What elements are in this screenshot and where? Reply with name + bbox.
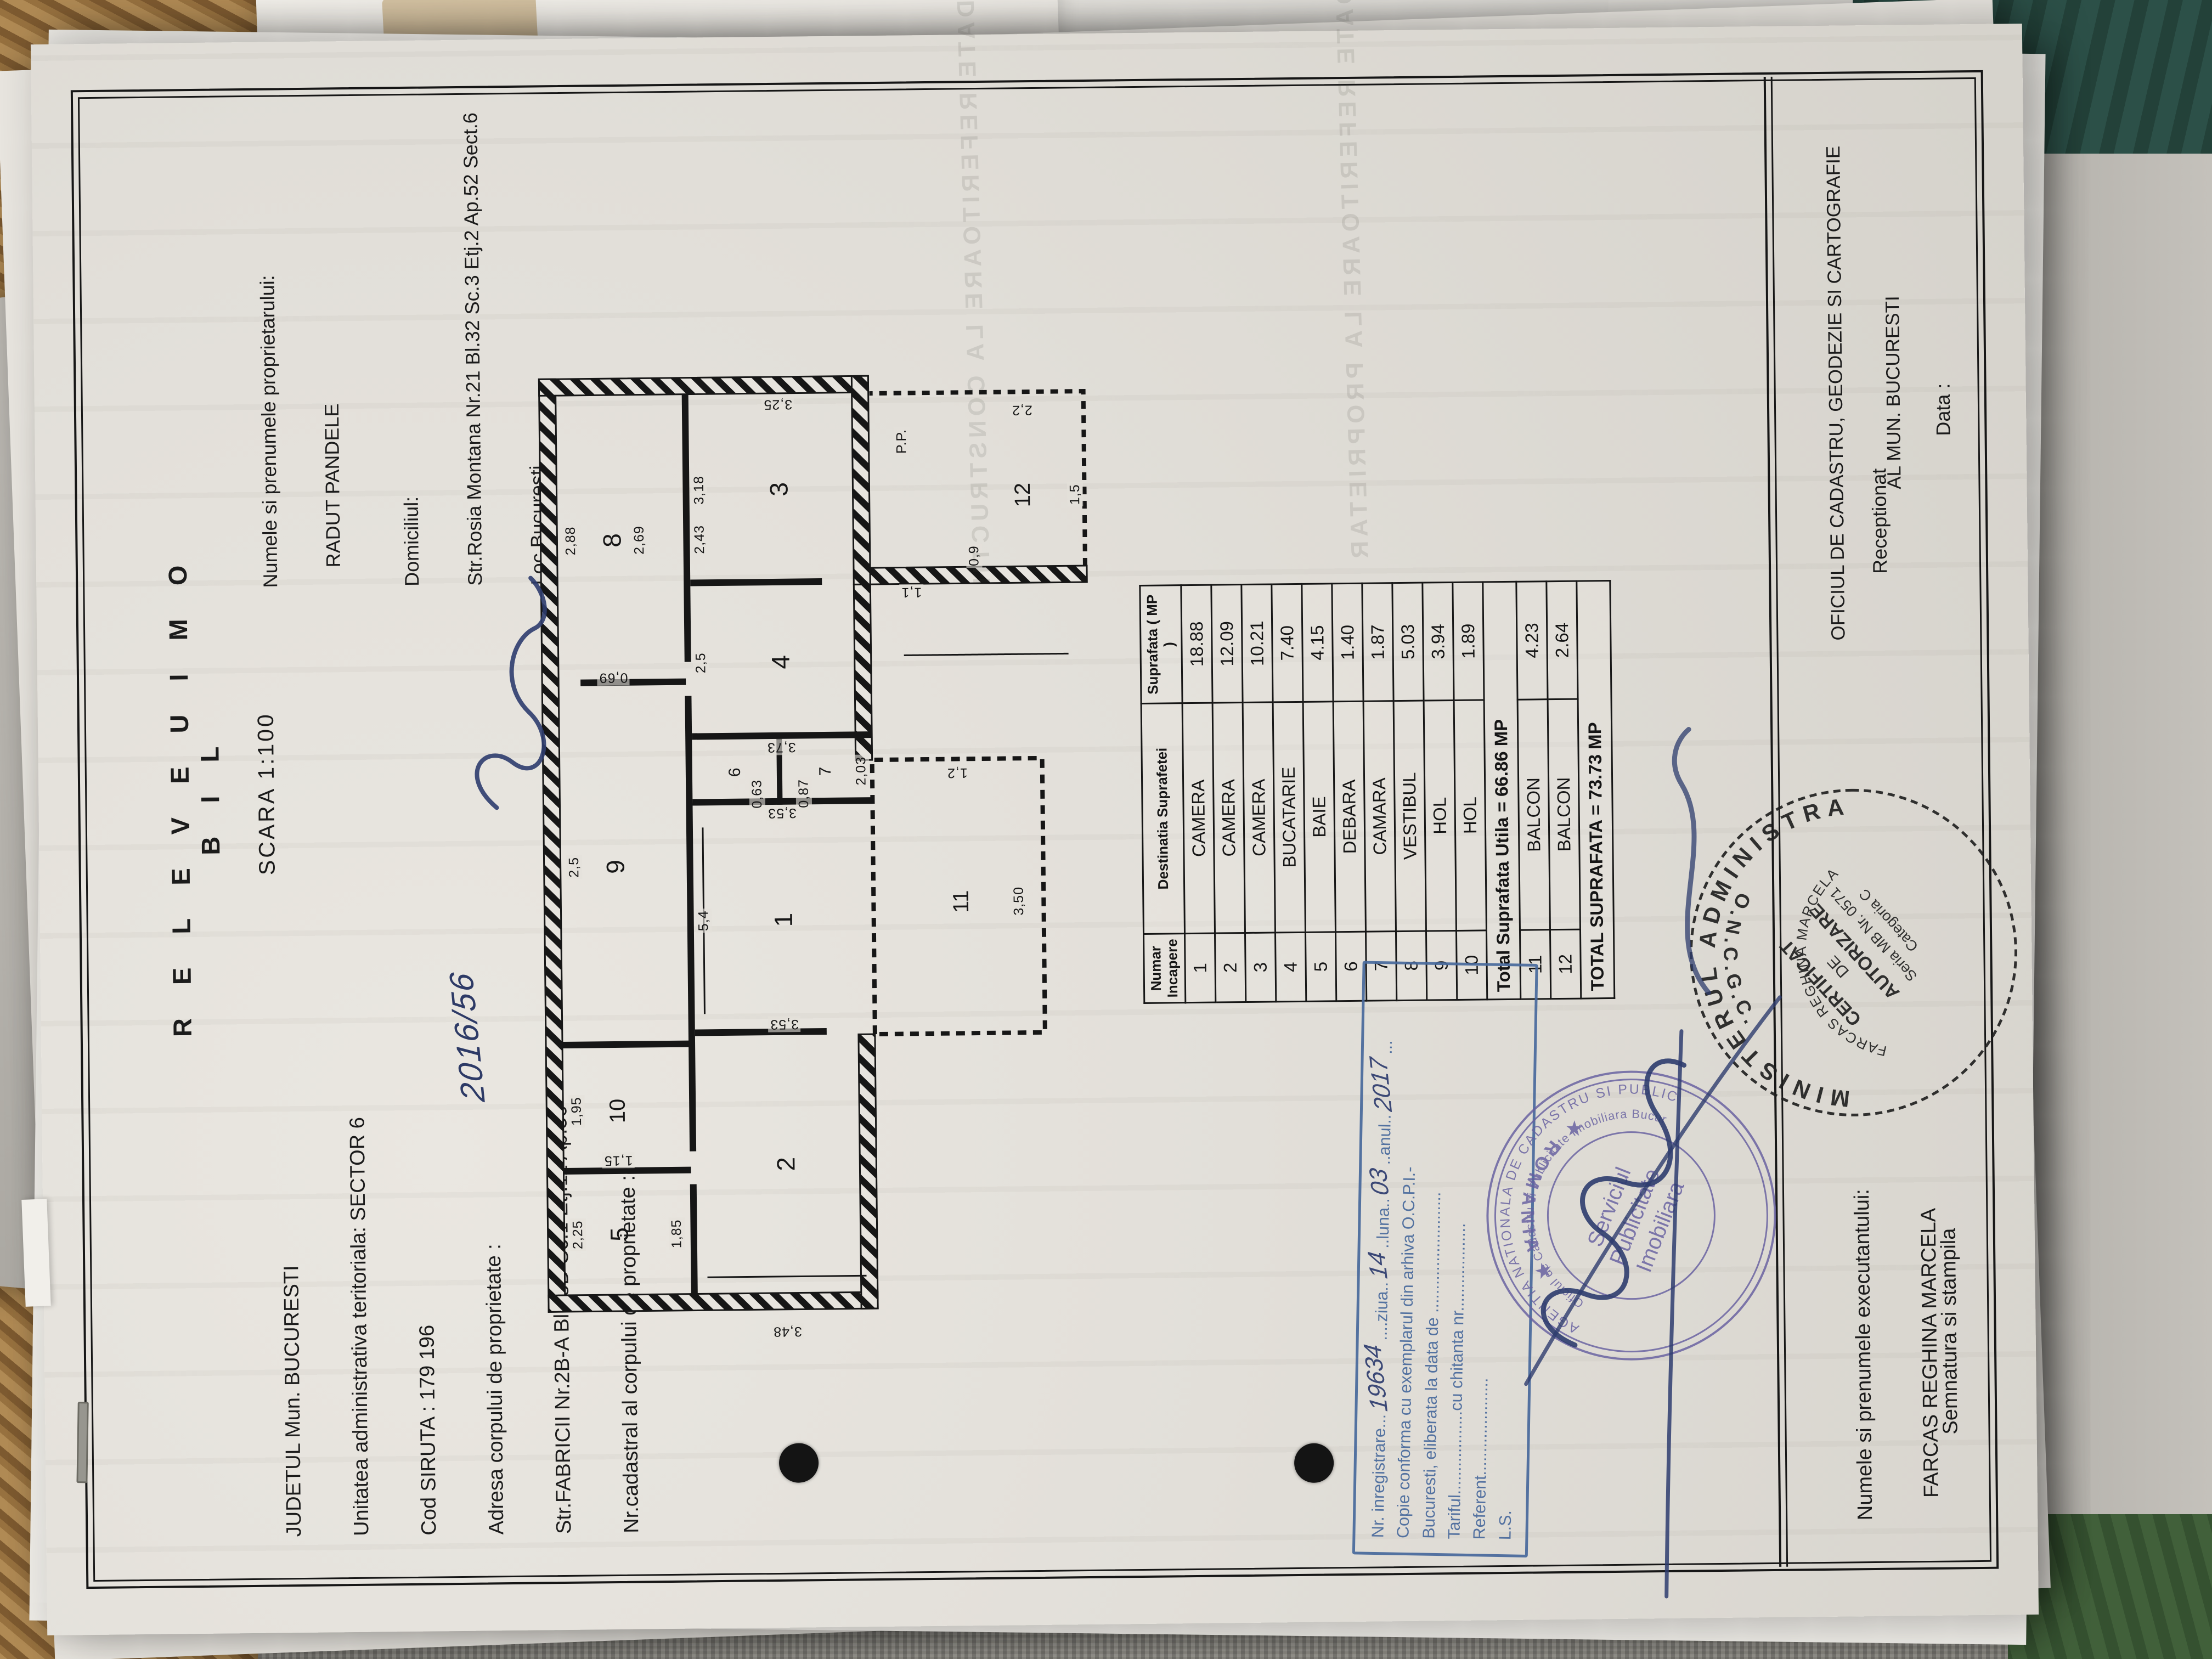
areas-table-cell: 3.94 [1423,583,1454,701]
photo-of-document: R E L E V E U I M O B I L SCARA 1:100 JU… [0,0,2212,1659]
underlying-page-edge [21,1199,50,1307]
room-number-label: 9 [601,858,630,876]
office-name-line2: AL MUN. BUCURESTI [1876,101,1911,683]
cadastral-document-sheet: R E L E V E U I M O B I L SCARA 1:100 JU… [31,24,2039,1635]
room-number-label: 11 [949,888,974,915]
areas-table-cell: VESTIBUL [1393,701,1426,932]
month-label: luna [1374,1207,1393,1239]
room-number-label: 6 [726,766,744,778]
floor-plan: 3,481,852,251,151,955,43,533,532,52,52,8… [517,330,1114,1356]
handwritten-registration-number: 19634 [1372,1341,1380,1414]
dimension-label: 1,15 [602,1152,635,1169]
col-header-area: Suprafata ( MP ) [1140,585,1182,704]
areas-table-cell: 1.89 [1453,582,1484,701]
ministry-ring-text: MINISTERUL ADMINISTRATIEI PUBLICE [1676,793,1853,1130]
dimension-label: 2,5 [693,651,709,675]
areas-table-row: 1CAMERA18.88 [1181,585,1216,1002]
dimension-label: 1,1 [899,584,923,600]
signature-stamp-label: Semnatura si stampila [1937,1228,1963,1434]
owner-label: Numele si prenumele proprietarului: [249,94,286,588]
areas-table-row: 5BAIE4.15 [1302,584,1336,1001]
punch-hole [779,1443,819,1483]
areas-table-cell: HOL [1454,700,1486,931]
col-header-room-number: Numar Incapere [1144,934,1186,1003]
areas-table-cell: 12.09 [1211,585,1243,703]
areas-table-cell: 2 [1215,933,1245,1003]
owner-name: RADUT PANDELE [313,93,349,568]
dimension-label: 3,48 [771,1323,804,1340]
room-number-label: 4 [766,653,795,671]
year-label: anul [1375,1124,1395,1155]
grand-total-area: TOTAL SUPRAFATA = 73.73 MP [1577,581,1615,999]
areas-table-cell: 5.03 [1392,583,1424,701]
areas-table-row: 6DEBARA1.40 [1332,583,1367,1001]
dimension-label: 0,69 [597,669,630,686]
room-number-label: 2 [771,1155,800,1173]
areas-table-cell: 10.21 [1242,584,1273,703]
handwritten-month: 03 [1378,1165,1381,1199]
office-block: OFICIUL DE CADASTRU, GEODEZIE SI CARTOGR… [1790,101,1940,685]
areas-table-cell: 18.88 [1181,585,1212,703]
areas-table-cell: CAMERA [1182,703,1215,934]
room-number-label: 3 [764,481,793,498]
dimension-label: 3,53 [768,1016,800,1032]
room-number-label: 5 [605,1226,634,1243]
areas-table-cell: 5 [1305,932,1336,1002]
received-label: Receptionat [1867,468,1892,574]
areas-table-cell: 1 [1184,933,1215,1003]
areas-table-cell: 1.87 [1362,583,1393,702]
areas-table-cell: 1.40 [1332,583,1363,702]
dimension-label: 1,5 [1067,482,1083,506]
areas-table-cell: 12 [1550,929,1581,999]
areas-table-header-row: Numar Incapere Destinatia Suprafetei Sup… [1140,585,1186,1003]
dimension-label: 5,4 [696,909,712,933]
office-name-line1: OFICIUL DE CADASTRU, GEODEZIE SI CARTOGR… [1819,102,1854,684]
room-number-label: 10 [606,1097,631,1125]
areas-table-cell: 2.64 [1547,581,1578,699]
areas-table-row: 10HOL1.89 [1453,582,1487,1000]
areas-table-cell: BUCATARIE [1273,702,1305,933]
areas-table-row: 2CAMERA12.09 [1211,585,1246,1002]
room-number-label: 8 [597,532,627,549]
dimension-label: P.P. [894,427,910,455]
dimension-label: 1,85 [669,1217,685,1250]
areas-table-cell: CAMERA [1212,703,1245,934]
areas-table-row: 8VESTIBUL5.03 [1392,583,1427,1000]
domicile-address: Str.Rosia Montana Nr.21 Bl.32 Sc.3 Etj.2… [454,92,491,586]
areas-table-cell: HOL [1424,701,1456,932]
dimension-label: 2,69 [631,524,648,556]
handwritten-year: 2017 [1378,1054,1384,1114]
areas-table-cell: CAMERA [1243,702,1275,933]
room-number-label: 7 [816,765,835,777]
county-line: JUDETUL Mun. BUCURESTI [271,906,312,1537]
total-useful-area-row: Total Suprafata Utila = 66.86 MP [1483,582,1521,1000]
dimension-label: 2,88 [563,524,579,557]
areas-table-cell: 4.15 [1302,584,1333,702]
svg-text:MINISTERUL ADMINISTRATIEI PU: MINISTERUL ADMINISTRATIEI PUBLICE [1676,793,1853,1130]
areas-table-row: 3CAMERA10.21 [1242,584,1276,1002]
day-label: ziua [1372,1291,1391,1322]
admin-unit-line: Unitatea administrativa teritoriala: SEC… [338,905,379,1537]
areas-table-row: 12BALCON2.64 [1547,581,1581,998]
areas-table-cell: 3 [1245,933,1276,1002]
date-label: Data : [1932,383,1955,436]
domicile-label: Domiciliul: [391,93,428,587]
areas-table-cell: 7.40 [1272,584,1303,702]
areas-table-cell: 4 [1275,932,1306,1002]
dimension-label: 3,50 [1011,885,1028,917]
punch-hole [1294,1443,1334,1483]
col-header-destination: Destinatia Suprafetei [1141,703,1184,934]
areas-table-cell: DEBARA [1333,701,1365,932]
handwritten-day: 14 [1376,1249,1380,1282]
grand-total-row: TOTAL SUPRAFATA = 73.73 MP [1577,581,1615,999]
areas-table-cell: CAMARA [1363,701,1396,932]
dimension-label: 3,18 [691,474,708,506]
areas-table-row: 7CAMARA1.87 [1362,583,1397,1001]
staple [76,1402,88,1483]
dimension-label: 0,63 [749,778,765,810]
dimension-label: 2,5 [566,855,582,879]
registration-label: Nr. inregistrare [1368,1428,1389,1538]
dimension-label: 2,43 [692,523,708,556]
room-number-label: 12 [1011,481,1036,509]
total-useful-area: Total Suprafata Utila = 66.86 MP [1483,582,1521,1000]
room-number-label: 1 [769,911,798,929]
areas-table: Numar Incapere Destinatia Suprafetei Sup… [1139,580,1615,1004]
executant-label: Numele si prenumele executantului: [1846,1189,1882,1521]
dimension-label: 2,03 [853,755,870,787]
dimension-label: 0,87 [795,777,812,810]
areas-table-row: 4BUCATARIE7.40 [1272,584,1306,1001]
areas-table-cell: BALCON [1548,699,1580,930]
areas-table-row: 9HOL3.94 [1423,583,1457,1000]
page-title: R E L E V E U I M O B I L [162,547,228,1041]
dimension-label: 3,73 [765,739,798,755]
dimension-label: 2,2 [1010,402,1034,417]
dimension-label: 2,25 [570,1218,586,1251]
areas-table-cell: BAIE [1303,702,1335,933]
siruta-code: Cod SIRUTA : 179 196 [406,904,447,1536]
dimension-label: 1,95 [569,1095,585,1127]
dimension-label: 1,2 [945,765,969,781]
areas-table-cell: 4.23 [1516,582,1548,700]
dimension-label: 3,25 [761,396,794,413]
dimension-label: 3,53 [766,805,798,821]
areas-table-cell: BALCON [1517,699,1550,930]
areas-table-row: 11BALCON4.23 [1516,582,1551,999]
ministry-round-stamp: MINISTERUL ADMINISTRATIEI PUBLICE O.N.C.… [1676,775,2031,1130]
